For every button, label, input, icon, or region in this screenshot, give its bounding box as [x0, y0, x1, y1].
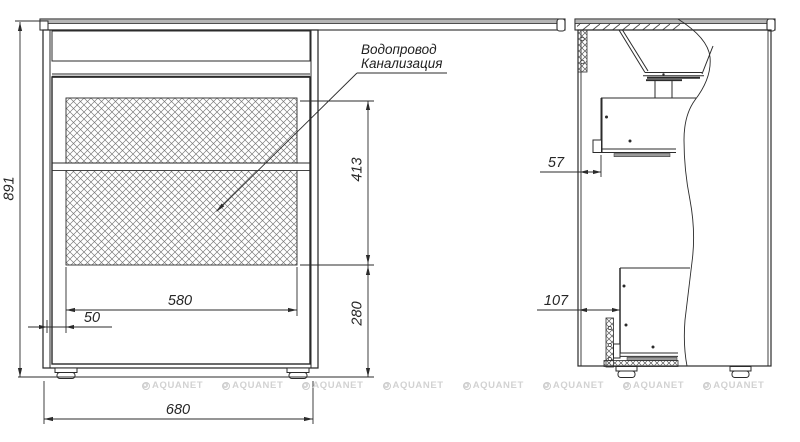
watermark: AQUANET — [302, 380, 363, 391]
aquanet-logo-icon — [703, 382, 711, 390]
cabinet-front — [43, 30, 318, 379]
dim-upper-section-label: 413 — [351, 150, 366, 190]
aquanet-logo-icon — [222, 382, 230, 390]
dim-lower-section-label: 280 — [351, 294, 366, 334]
countertop-front — [40, 19, 565, 31]
dim-height-label: 891 — [3, 169, 18, 209]
watermark: AQUANET — [142, 380, 203, 391]
watermark: AQUANET — [222, 380, 283, 391]
dim-panel-width-label: 580 — [160, 294, 200, 309]
watermark: AQUANET — [623, 380, 684, 391]
wall-rail-hatch — [578, 30, 587, 72]
foot-side-left — [616, 367, 637, 378]
aquanet-logo-icon — [623, 382, 631, 390]
rattan-panel-hatch — [66, 98, 297, 265]
watermark: AQUANET — [383, 380, 444, 391]
foot-side-right — [730, 367, 751, 378]
side-view — [537, 19, 775, 378]
aquanet-logo-icon — [463, 382, 471, 390]
aquanet-logo-icon — [142, 382, 150, 390]
sink-basin-section — [619, 30, 713, 98]
front-view — [15, 19, 565, 424]
dim-side-offset-label: 50 — [72, 311, 112, 326]
plumbing-note-line1: Водопровод — [361, 43, 437, 57]
watermark: AQUANET — [463, 380, 524, 391]
siphon-box — [593, 98, 696, 157]
plinth-hatch — [604, 361, 678, 367]
watermark-row: AQUANET AQUANET AQUANET AQUANET AQUANET … — [142, 380, 764, 391]
aquanet-logo-icon — [383, 382, 391, 390]
dim-overall-width-label: 680 — [158, 403, 198, 418]
watermark: AQUANET — [543, 380, 604, 391]
break-line — [678, 19, 710, 366]
aquanet-logo-icon — [302, 382, 310, 390]
lower-drawer-box — [604, 268, 690, 367]
blueprint-canvas: 891 413 280 580 50 680 57 107 Водопровод… — [0, 0, 800, 442]
plumbing-note-line2: Канализация — [361, 57, 442, 71]
watermark: AQUANET — [703, 380, 764, 391]
dim-bottom-gap-label: 107 — [536, 294, 576, 309]
countertop-side — [575, 19, 775, 31]
dim-top-gap-label: 57 — [536, 156, 576, 171]
aquanet-logo-icon — [543, 382, 551, 390]
